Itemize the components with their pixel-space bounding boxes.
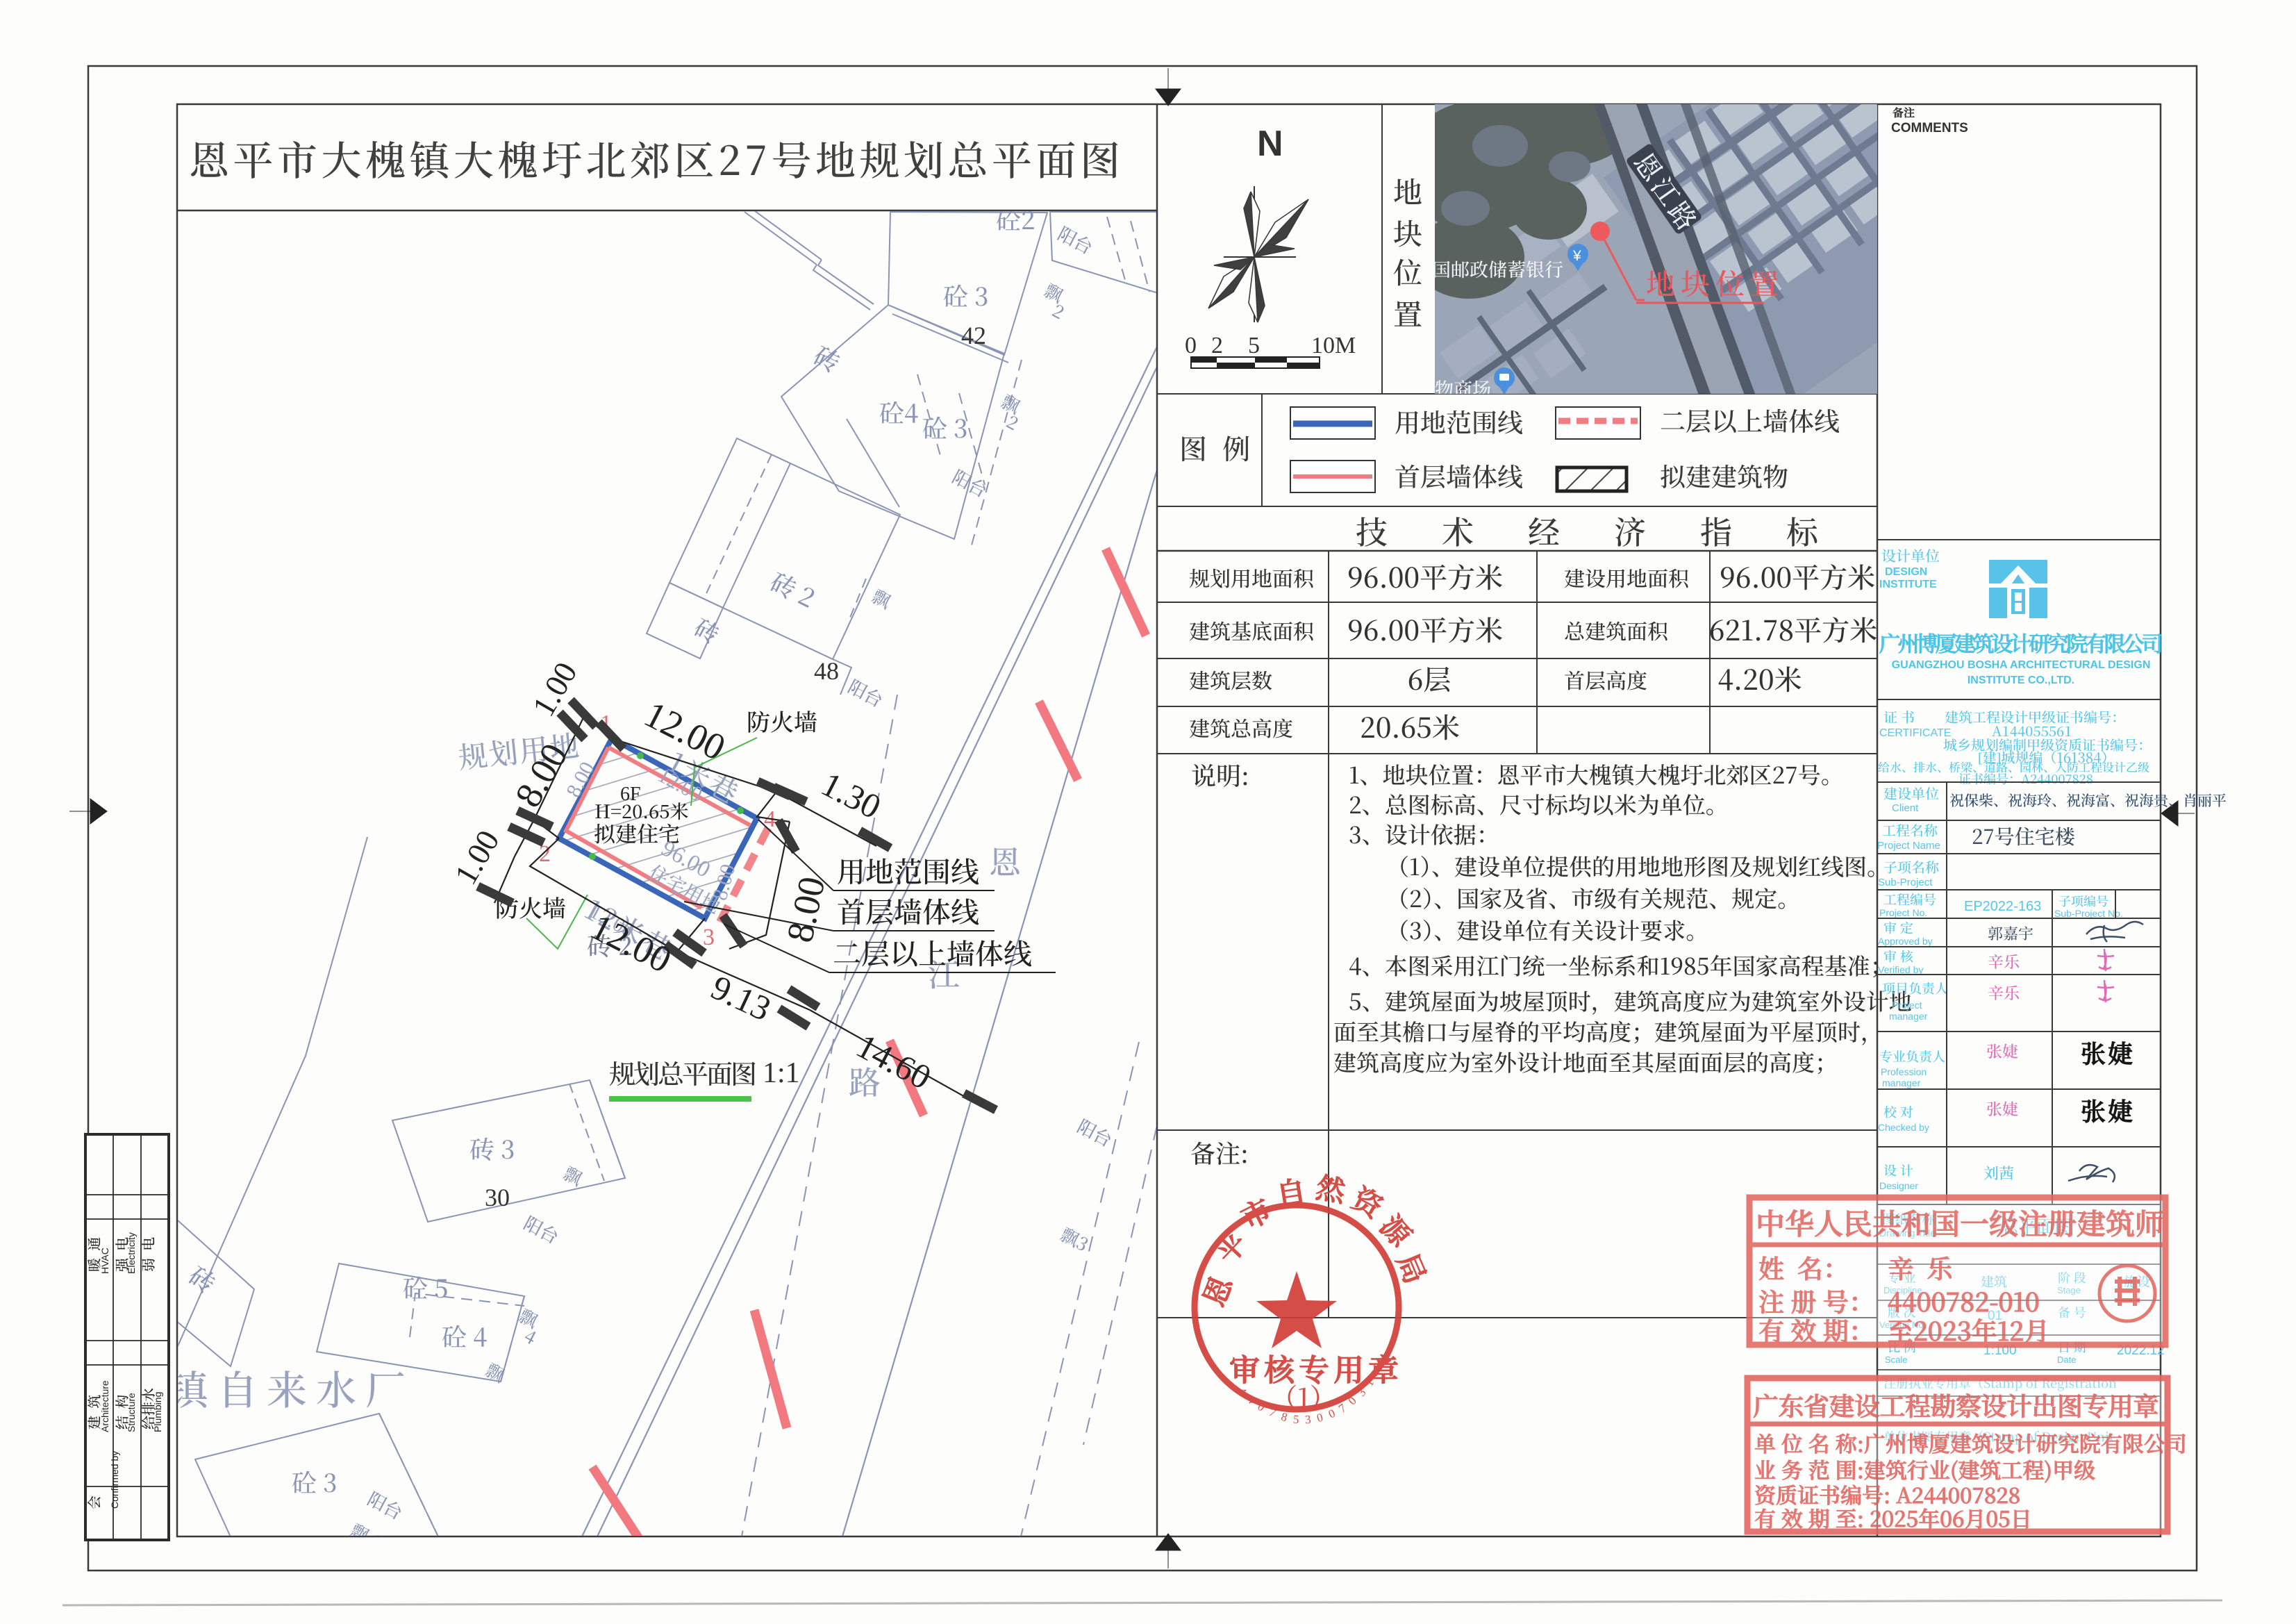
svg-text:工程名称: 工程名称 [1882, 820, 1938, 840]
svg-text:Structure: Structure [126, 1393, 137, 1432]
svg-text:Approved by: Approved by [1878, 936, 1933, 947]
svg-text:位: 位 [1393, 251, 1422, 292]
svg-text:弱 电: 弱 电 [138, 1237, 158, 1272]
svg-text:96.00平方米: 96.00平方米 [1720, 556, 1875, 596]
svg-text:CERTIFICATE: CERTIFICATE [1879, 727, 1951, 739]
svg-text:设计单位: 设计单位 [1881, 545, 1940, 566]
svg-text:（1）、建设单位提供的用地地形图及规划红线图。: （1）、建设单位提供的用地地形图及规划红线图。 [1386, 850, 1890, 882]
svg-text:Architecture: Architecture [99, 1380, 110, 1432]
svg-text:有 效 期： 至2023年12月: 有 效 期： 至2023年12月 [1758, 1311, 2049, 1348]
svg-text:2、总图标高、尺寸标均以米为单位。: 2、总图标高、尺寸标均以米为单位。 [1349, 788, 1729, 820]
svg-text:备注:: 备注: [1190, 1135, 1249, 1170]
svg-text:Plumbing: Plumbing [152, 1392, 163, 1432]
svg-text:30: 30 [485, 1184, 510, 1211]
svg-text:3: 3 [1304, 1413, 1311, 1427]
svg-text:Sub-Project No.: Sub-Project No. [2054, 908, 2123, 919]
svg-text:42: 42 [961, 322, 986, 349]
svg-text:建设用地面积: 建设用地面积 [1564, 562, 1689, 593]
svg-text:砼 3: 砼 3 [292, 1464, 338, 1500]
svg-text:地块位置: 地块位置 [1646, 262, 1785, 304]
svg-text:设 计: 设 计 [1883, 1161, 1913, 1179]
svg-text:砼4: 砼4 [879, 395, 918, 430]
svg-text:中华人民共和国一级注册建筑师: 中华人民共和国一级注册建筑师 [1756, 1202, 2164, 1243]
svg-text:备注: 备注 [1892, 104, 1915, 120]
svg-text:Electricity: Electricity [126, 1232, 137, 1274]
svg-text:证 书: 证 书 [1883, 706, 1915, 727]
svg-text:张婕: 张婕 [1986, 1039, 2018, 1062]
svg-text:10M: 10M [1311, 333, 1356, 358]
svg-text:¥: ¥ [1572, 248, 1581, 264]
svg-text:3: 3 [703, 925, 715, 950]
svg-text:总建筑面积: 总建筑面积 [1564, 615, 1668, 645]
svg-text:Verified by: Verified by [1878, 964, 1923, 975]
svg-text:96.00平方米: 96.00平方米 [1347, 556, 1503, 596]
svg-text:国邮政储蓄银行: 国邮政储蓄银行 [1432, 255, 1563, 282]
svg-text:刘茜: 刘茜 [1983, 1162, 2014, 1184]
svg-text:Date: Date [2057, 1354, 2076, 1365]
svg-text:用地范围线: 用地范围线 [837, 850, 979, 890]
svg-text:5: 5 [1248, 333, 1260, 358]
svg-text:Confirmed by: Confirmed by [109, 1451, 120, 1509]
svg-text:规划用地面积: 规划用地面积 [1189, 562, 1314, 593]
svg-text:砼 3: 砼 3 [943, 278, 989, 313]
svg-text:用地范围线: 用地范围线 [1395, 402, 1523, 440]
svg-text:20.65米: 20.65米 [1360, 706, 1460, 746]
svg-text:4.20米: 4.20米 [1717, 658, 1802, 698]
svg-text:Sub-Project: Sub-Project [1878, 877, 1933, 888]
svg-text:建筑基底面积: 建筑基底面积 [1189, 615, 1314, 645]
svg-text:27号住宅楼: 27号住宅楼 [1972, 822, 2075, 850]
svg-text:技术经济指标: 技术经济指标 [1356, 508, 1872, 554]
svg-text:二层以上墙体线: 二层以上墙体线 [833, 931, 1032, 972]
svg-text:砼 4: 砼 4 [442, 1318, 488, 1354]
svg-text:N: N [1257, 124, 1283, 164]
svg-text:manager: manager [1882, 1077, 1921, 1088]
svg-text:说明:: 说明: [1191, 757, 1249, 793]
svg-text:广东省建设工程勘察设计出图专用章: 广东省建设工程勘察设计出图专用章 [1753, 1386, 2158, 1423]
svg-text:（2）、国家及省、市级有关规范、规定。: （2）、国家及省、市级有关规范、规定。 [1386, 881, 1800, 914]
svg-text:广州博厦建筑设计研究院有限公司: 广州博厦建筑设计研究院有限公司 [1879, 627, 2163, 658]
svg-text:子项名称: 子项名称 [1883, 856, 1939, 877]
svg-text:校 对: 校 对 [1883, 1102, 1913, 1121]
svg-text:首层墙体线: 首层墙体线 [837, 890, 979, 931]
svg-text:5、建筑屋面为坡屋顶时，建筑高度应为建筑室外设计地: 5、建筑屋面为坡屋顶时，建筑高度应为建筑室外设计地 [1349, 984, 1912, 1017]
svg-text:Project Name: Project Name [1877, 840, 1940, 852]
svg-text:专业负责人: 专业负责人 [1879, 1047, 1945, 1066]
svg-text:证书编号：A244007828: 证书编号：A244007828 [1958, 770, 2093, 788]
svg-text:辛乐: 辛乐 [1988, 981, 2020, 1004]
svg-text:有 效 期 至: 2025年06月05日: 有 效 期 至: 2025年06月05日 [1754, 1502, 2032, 1533]
svg-text:建筑总高度: 建筑总高度 [1189, 712, 1293, 743]
svg-text:Profession: Profession [1881, 1066, 1927, 1077]
svg-text:防火墙: 防火墙 [747, 704, 817, 738]
svg-text:Client: Client [1892, 802, 1919, 814]
svg-text:Project No.: Project No. [1879, 907, 1927, 918]
svg-text:会: 会 [83, 1495, 103, 1509]
svg-text:（3）、建设单位有关设计要求。: （3）、建设单位有关设计要求。 [1386, 913, 1708, 946]
svg-text:郭嘉宇: 郭嘉宇 [1988, 922, 2033, 944]
svg-text:镇自来水厂: 镇自来水厂 [168, 1358, 415, 1416]
svg-text:审 核: 审 核 [1883, 947, 1913, 966]
svg-text:建设单位: 建设单位 [1883, 783, 1939, 803]
svg-text:3、设计依据：: 3、设计依据： [1349, 818, 1499, 850]
svg-text:规划总平面图: 规划总平面图 [609, 1053, 756, 1091]
svg-text:621.78平方米: 621.78平方米 [1709, 609, 1878, 649]
svg-text:项目负责人: 项目负责人 [1882, 979, 1948, 997]
svg-text:恩平市大槐镇大槐圩北郊区27号地规划总平面图: 恩平市大槐镇大槐圩北郊区27号地规划总平面图 [189, 129, 1124, 187]
svg-text:Project: Project [1892, 1000, 1922, 1011]
svg-text:砼 5: 砼 5 [403, 1270, 449, 1305]
svg-text:面至其檐口与屋脊的平均高度；建筑屋面为平屋顶时，: 面至其檐口与屋脊的平均高度；建筑屋面为平屋顶时， [1333, 1015, 1883, 1047]
svg-text:辛乐: 辛乐 [1988, 950, 2020, 972]
svg-text:建筑层数: 建筑层数 [1189, 664, 1272, 695]
svg-text:恩: 恩 [989, 838, 1021, 884]
svg-text:4、本图采用江门统一坐标系和1985年国家高程基准；: 4、本图采用江门统一坐标系和1985年国家高程基准； [1349, 949, 1893, 981]
svg-text:INSTITUTE CO.,LTD.: INSTITUTE CO.,LTD. [1968, 674, 2074, 686]
svg-text:祝保柴、祝海玲、祝海富、祝海贵、肖丽平: 祝保柴、祝海玲、祝海富、祝海贵、肖丽平 [1949, 790, 2227, 811]
svg-text:砖 3: 砖 3 [469, 1131, 515, 1166]
svg-text:2: 2 [1211, 333, 1223, 358]
svg-text:张婕: 张婕 [1986, 1097, 2018, 1120]
svg-text:96.00平方米: 96.00平方米 [1347, 609, 1503, 649]
svg-text:0: 0 [1185, 333, 1197, 358]
svg-text:地: 地 [1393, 170, 1422, 212]
svg-text:1、地块位置：恩平市大槐镇大槐圩北郊区27号。: 1、地块位置：恩平市大槐镇大槐圩北郊区27号。 [1349, 758, 1844, 790]
svg-text:姓 名： 辛 乐: 姓 名： 辛 乐 [1758, 1248, 1952, 1286]
svg-text:建筑高度应为室外设计地面至其屋面面层的高度；: 建筑高度应为室外设计地面至其屋面面层的高度； [1333, 1045, 1838, 1078]
svg-text:拟建建筑物: 拟建建筑物 [1660, 456, 1788, 494]
svg-text:COMMENTS: COMMENTS [1891, 121, 1968, 135]
svg-text:GUANGZHOU BOSHA ARCHITECTURAL: GUANGZHOU BOSHA ARCHITECTURAL DESIGN [1892, 659, 2151, 671]
svg-text:6层: 6层 [1408, 658, 1451, 698]
svg-text:manager: manager [1889, 1011, 1928, 1022]
svg-text:块: 块 [1393, 212, 1422, 254]
svg-text:INSTITUTE: INSTITUTE [1879, 579, 1937, 590]
svg-text:Checked by: Checked by [1878, 1122, 1929, 1133]
svg-text:工程编号: 工程编号 [1883, 890, 1936, 909]
svg-text:张婕: 张婕 [2081, 1093, 2135, 1128]
svg-text:Scale: Scale [1885, 1354, 1908, 1365]
svg-text:DESIGN: DESIGN [1885, 566, 1927, 578]
svg-text:Designer: Designer [1879, 1180, 1918, 1191]
svg-text:二层以上墙体线: 二层以上墙体线 [1660, 401, 1840, 438]
svg-text:1:1: 1:1 [763, 1057, 800, 1089]
svg-text:图 例: 图 例 [1179, 428, 1254, 467]
svg-text:48: 48 [814, 657, 839, 685]
svg-text:张婕: 张婕 [2081, 1035, 2135, 1070]
svg-text:首层高度: 首层高度 [1564, 664, 1647, 695]
svg-text:砼 3: 砼 3 [922, 410, 968, 445]
svg-text:HVAC: HVAC [99, 1248, 110, 1274]
svg-text:5: 5 [1292, 1413, 1299, 1427]
svg-text:审 定: 审 定 [1883, 918, 1913, 937]
svg-text:首层墙体线: 首层墙体线 [1395, 456, 1523, 494]
svg-text:置: 置 [1393, 292, 1422, 334]
svg-text:EP2022-163: EP2022-163 [1964, 899, 2041, 914]
